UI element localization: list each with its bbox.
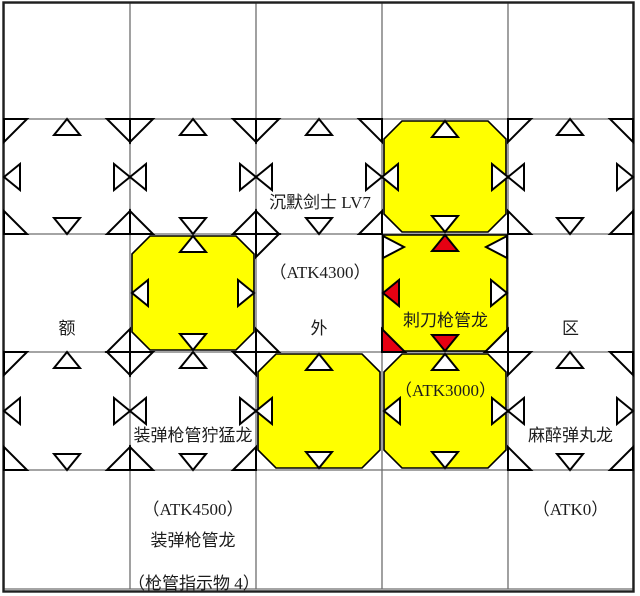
link-arrow-corner-nw [233, 211, 256, 234]
link-arrow-corner-ne [256, 211, 279, 234]
link-arrow-corner-nw [107, 329, 130, 352]
link-arrow-e [240, 164, 256, 190]
link-arrow-corner-se [4, 352, 27, 375]
link-arrow-corner-se [130, 119, 153, 142]
link-arrow-corner-ne [4, 211, 27, 234]
link-arrow-e [114, 164, 130, 190]
yellow-zone-octagon [258, 354, 380, 468]
link-arrow-corner-se [256, 119, 279, 142]
link-arrow-corner-se [508, 119, 531, 142]
link-arrow-e [617, 164, 633, 190]
link-arrow-w [256, 164, 272, 190]
link-arrow-corner-nw [107, 211, 130, 234]
link-arrow-w [508, 164, 524, 190]
link-arrow-corner-nw [610, 447, 633, 470]
link-arrow-corner-se [508, 352, 531, 375]
yellow-zone-octagon [384, 354, 506, 468]
link-arrow-corner-sw [233, 119, 256, 142]
link-arrow-w [4, 398, 20, 424]
link-arrow-corner-sw [610, 352, 633, 375]
link-arrow-corner-sw [233, 352, 256, 375]
link-arrow-e [617, 398, 633, 424]
link-arrow-corner-nw [359, 211, 382, 234]
link-arrow-w [130, 164, 146, 190]
link-arrow-n [180, 352, 206, 368]
link-arrow-s [180, 218, 206, 234]
link-arrow-corner-ne [256, 329, 279, 352]
yellow-zone-rect [383, 235, 507, 351]
link-arrow-s [557, 454, 583, 470]
link-arrow-corner-sw [107, 352, 130, 375]
link-arrow-n [557, 119, 583, 135]
link-arrow-corner-ne [508, 211, 531, 234]
link-arrow-n [180, 119, 206, 135]
link-arrow-corner-se [4, 119, 27, 142]
link-arrow-s [557, 218, 583, 234]
link-arrow-n [54, 119, 80, 135]
link-arrow-corner-sw [359, 119, 382, 142]
board-svg [0, 0, 640, 596]
link-arrow-w [508, 398, 524, 424]
link-arrow-s [54, 218, 80, 234]
link-arrow-corner-se [130, 352, 153, 375]
link-arrow-corner-ne [130, 211, 153, 234]
link-arrow-w [130, 398, 146, 424]
link-arrow-w [4, 164, 20, 190]
link-arrow-e [114, 398, 130, 424]
link-arrow-n [54, 352, 80, 368]
link-arrow-corner-sw [610, 119, 633, 142]
link-arrow-s [180, 454, 206, 470]
link-arrow-s [306, 218, 332, 234]
link-arrow-e [366, 164, 382, 190]
link-arrow-corner-nw [610, 211, 633, 234]
link-arrow-s [54, 454, 80, 470]
outer-border [4, 3, 634, 592]
link-arrow-corner-sw [107, 119, 130, 142]
link-arrow-corner-ne [130, 447, 153, 470]
link-arrow-n [557, 352, 583, 368]
yellow-zone-octagon [132, 236, 254, 350]
link-arrow-e [240, 398, 256, 424]
link-arrow-corner-nw [107, 447, 130, 470]
link-arrow-corner-se [256, 234, 279, 257]
link-arrow-corner-ne [508, 447, 531, 470]
field-diagram: 沉默剑士 LV7 （ATK4300） 额 外 区 刺刀枪管龙 （ATK3000）… [0, 0, 640, 596]
link-arrow-corner-ne [4, 447, 27, 470]
link-arrow-corner-nw [233, 447, 256, 470]
link-arrow-n [306, 119, 332, 135]
